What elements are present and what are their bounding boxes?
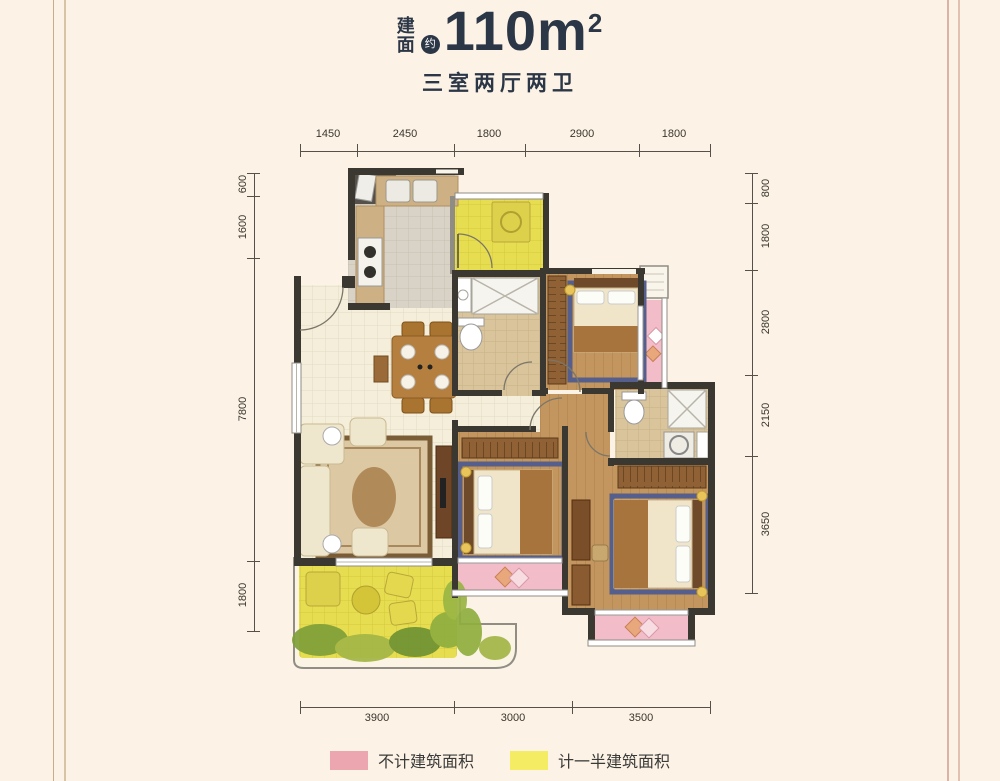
area-label-char1: 建 <box>397 17 416 36</box>
dim-tick <box>300 144 301 157</box>
area-label-char2: 面 <box>397 36 416 55</box>
dim-tick <box>247 561 260 562</box>
frame-line-right-outer <box>958 0 960 781</box>
dim-label: 1800 <box>642 128 706 140</box>
dim-label: 3500 <box>609 712 673 724</box>
header: 建 面 约 110m2 三室两厅两卫 <box>0 6 1000 97</box>
bedroom3-furniture <box>460 438 564 558</box>
dim-label: 1600 <box>237 199 249 255</box>
dim-tick <box>572 701 573 714</box>
dim-tick <box>247 258 260 259</box>
dim-line-right <box>752 173 753 593</box>
dim-tick <box>745 173 758 174</box>
area-number: 110m <box>444 0 588 62</box>
dim-label: 1800 <box>760 208 772 264</box>
area-value: 110m2 <box>444 6 604 55</box>
legend: 不计建筑面积 计一半建筑面积 <box>0 748 1000 772</box>
dim-tick <box>745 203 758 204</box>
frame-line-left-inner <box>64 0 66 781</box>
dim-label: 2450 <box>373 128 437 140</box>
dim-label: 2150 <box>760 387 772 443</box>
dim-label: 3650 <box>760 496 772 552</box>
dim-tick <box>300 701 301 714</box>
dim-tick <box>745 270 758 271</box>
frame-line-left-outer <box>53 0 54 781</box>
dim-line-left <box>254 173 255 631</box>
floor-plan-svg <box>290 160 750 680</box>
dim-label: 3900 <box>345 712 409 724</box>
floorplan-flyer: 建 面 约 110m2 三室两厅两卫 <box>0 0 1000 781</box>
dim-tick <box>710 701 711 714</box>
dim-label: 2800 <box>760 294 772 350</box>
dim-line-top <box>300 151 710 152</box>
legend-label: 不计建筑面积 <box>378 748 474 772</box>
dim-label: 1800 <box>237 567 249 623</box>
dim-line-bottom <box>300 707 710 708</box>
dim-label: 7800 <box>237 381 249 437</box>
area-label: 建 面 <box>397 17 416 55</box>
dim-tick <box>454 144 455 157</box>
dim-tick <box>710 144 711 157</box>
dim-tick <box>247 631 260 632</box>
legend-label: 计一半建筑面积 <box>558 748 670 772</box>
dim-tick <box>639 144 640 157</box>
frame-line-right-inner <box>947 0 949 781</box>
dim-label: 1800 <box>457 128 521 140</box>
dim-label: 3000 <box>481 712 545 724</box>
dim-tick <box>357 144 358 157</box>
dim-tick <box>745 375 758 376</box>
utility-furniture <box>492 202 530 242</box>
layout-subtitle: 三室两厅两卫 <box>422 67 578 97</box>
dim-tick <box>745 593 758 594</box>
living-furniture <box>300 418 452 556</box>
dim-tick <box>745 456 758 457</box>
area-exponent: 2 <box>588 8 603 38</box>
legend-swatch-pink <box>330 751 368 770</box>
legend-swatch-yellow <box>510 751 548 770</box>
dim-label: 2900 <box>550 128 614 140</box>
dim-tick <box>525 144 526 157</box>
dim-tick <box>454 701 455 714</box>
dim-label: 1450 <box>296 128 360 140</box>
area-title: 建 面 约 110m2 <box>397 6 604 55</box>
approx-badge: 约 <box>421 35 440 54</box>
